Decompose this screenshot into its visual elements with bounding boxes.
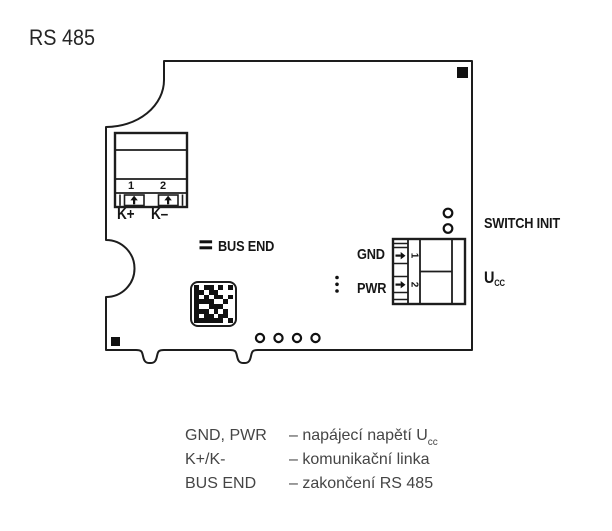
ucc-subscript: CC bbox=[494, 278, 505, 288]
datamatrix-pattern bbox=[194, 285, 233, 323]
bottom-contact-pads bbox=[256, 334, 320, 342]
legend-term: GND, PWR bbox=[185, 427, 267, 445]
legend-desc: – napájecí napětí Ucc bbox=[289, 427, 438, 448]
k-block-pin1-number: 1 bbox=[126, 180, 136, 192]
bus-end-jumper-icon bbox=[200, 240, 213, 249]
legend-term: BUS END bbox=[185, 475, 256, 493]
legend-row-gnd-pwr: GND, PWR – napájecí napětí Ucc bbox=[185, 427, 485, 451]
bus-end-label: BUS END bbox=[218, 238, 274, 255]
page-title: RS 485 bbox=[29, 25, 95, 51]
ucc-label: UCC bbox=[484, 268, 505, 288]
switch-init-buttons bbox=[444, 209, 453, 233]
k-terminal-block bbox=[115, 133, 187, 207]
legend-desc: – zakončení RS 485 bbox=[289, 475, 433, 496]
continuation-dots bbox=[335, 276, 339, 293]
k-plus-label: K+ bbox=[117, 206, 134, 224]
legend-term: K+/K- bbox=[185, 451, 225, 469]
diagram-canvas: RS 485 1 2 K+ K– BUS END GND PWR 1 2 SWI… bbox=[0, 0, 612, 531]
wire-entry-arrow-up-icon bbox=[130, 196, 171, 205]
legend-desc: – komunikační linka bbox=[289, 451, 430, 472]
pwr-label: PWR bbox=[357, 280, 386, 297]
fiducial-square-top-right bbox=[457, 67, 468, 78]
k-block-pin2-number: 2 bbox=[158, 180, 168, 192]
legend-row-k: K+/K- – komunikační linka bbox=[185, 451, 485, 475]
gnd-pwr-block-pin2-number: 2 bbox=[409, 280, 420, 290]
switch-init-label: SWITCH INIT bbox=[484, 215, 560, 232]
gnd-pwr-terminal-block bbox=[393, 239, 465, 304]
k-minus-label: K– bbox=[151, 206, 168, 224]
datamatrix-code bbox=[190, 281, 237, 327]
legend-desc-subscript: cc bbox=[428, 437, 438, 448]
gnd-pwr-block-pin1-number: 1 bbox=[409, 251, 420, 261]
wire-entry-arrow-right-icon bbox=[396, 252, 406, 288]
ucc-letter: U bbox=[484, 268, 494, 287]
fiducial-square-bottom-left bbox=[111, 337, 120, 346]
gnd-label: GND bbox=[357, 246, 385, 263]
legend-row-bus-end: BUS END – zakončení RS 485 bbox=[185, 475, 485, 499]
